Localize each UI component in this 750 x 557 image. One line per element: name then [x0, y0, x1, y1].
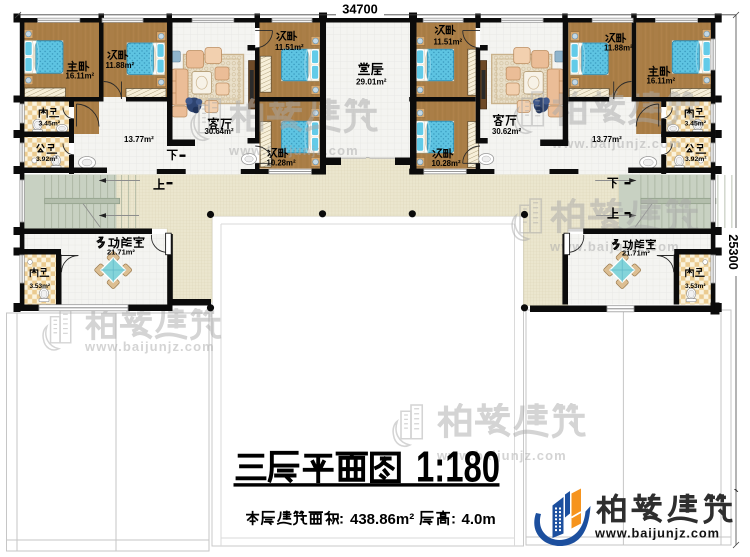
svg-text:13.77m²: 13.77m²	[592, 135, 622, 144]
svg-text:11.51m²: 11.51m²	[434, 38, 463, 47]
svg-text:`: `	[733, 487, 740, 509]
svg-text:3.92m²: 3.92m²	[685, 156, 707, 163]
svg-text:3.45m²: 3.45m²	[685, 121, 707, 128]
svg-text:www.baijunjz.com: www.baijunjz.com	[84, 339, 215, 354]
svg-text:438.86m²: 438.86m²	[350, 511, 414, 528]
svg-text:www.baijunjz.com: www.baijunjz.com	[228, 143, 359, 158]
svg-text:3.45m²: 3.45m²	[39, 121, 61, 128]
svg-text:3.53m²: 3.53m²	[30, 283, 51, 290]
svg-text::: :	[339, 511, 344, 528]
svg-text:3.53m²: 3.53m²	[685, 283, 706, 290]
svg-text:11.88m²: 11.88m²	[604, 44, 633, 53]
svg-text:16.11m²: 16.11m²	[66, 72, 95, 81]
svg-text:www.baijunjz.com: www.baijunjz.com	[594, 526, 720, 541]
svg-text:29.01m²: 29.01m²	[356, 78, 387, 87]
svg-text:21.71m²: 21.71m²	[107, 248, 135, 257]
svg-text:34700: 34700	[342, 2, 378, 17]
svg-text:30.62m²: 30.62m²	[492, 127, 521, 136]
svg-text:30.64m²: 30.64m²	[205, 127, 234, 136]
svg-text:16.11m²: 16.11m²	[647, 77, 676, 86]
svg-text:10.28m²: 10.28m²	[267, 159, 296, 168]
svg-text:10.28m²: 10.28m²	[432, 159, 461, 168]
svg-text:13.77m²: 13.77m²	[124, 135, 154, 144]
svg-text:11.51m²: 11.51m²	[275, 43, 304, 52]
svg-text:4.0m: 4.0m	[462, 511, 496, 528]
svg-text:25300: 25300	[726, 234, 741, 270]
svg-text::: :	[451, 511, 456, 528]
svg-text:11.88m²: 11.88m²	[106, 61, 135, 70]
svg-text:21.71m²: 21.71m²	[622, 249, 650, 258]
svg-text:3.92m²: 3.92m²	[36, 156, 58, 163]
